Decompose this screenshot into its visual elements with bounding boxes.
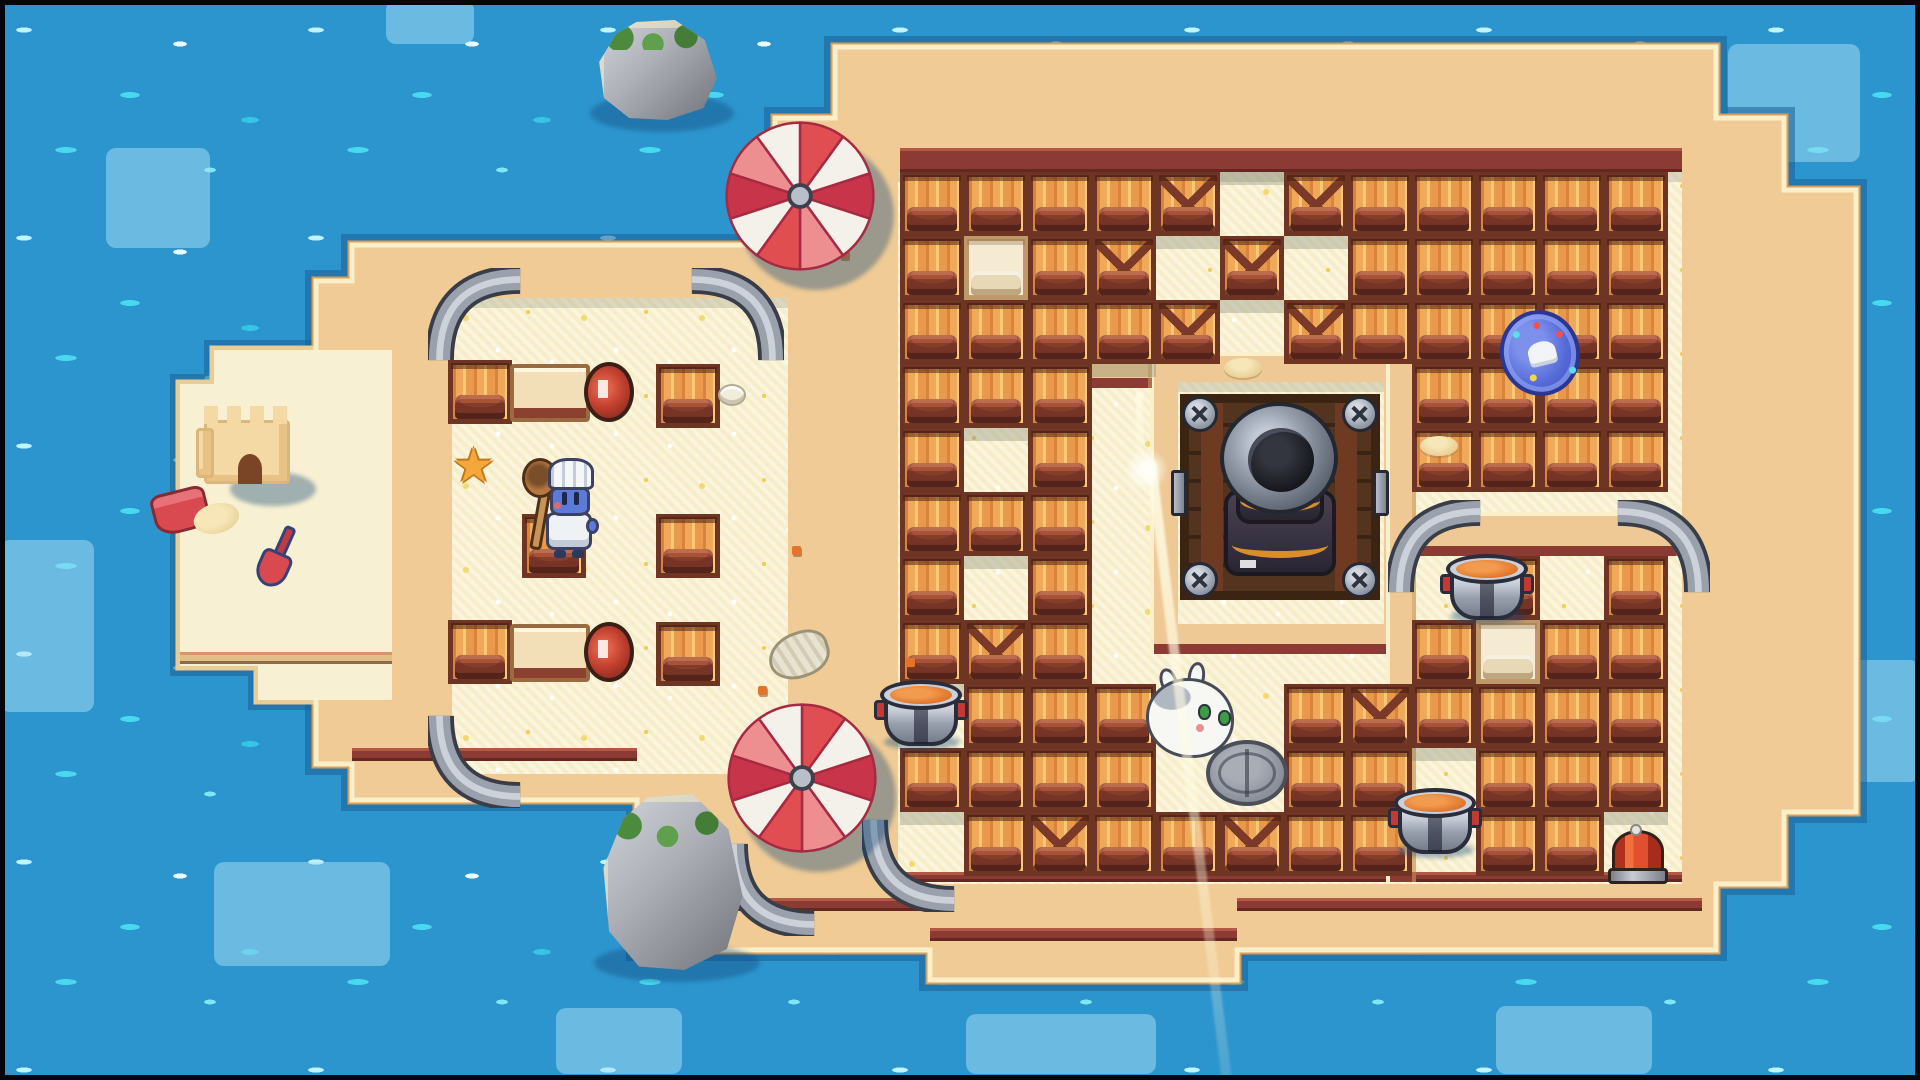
muzzle-glint — [598, 640, 608, 658]
chef-player-character[interactable] — [528, 458, 602, 560]
floor-shadow — [1092, 364, 1156, 377]
muzzle-glint — [598, 380, 608, 398]
crate[interactable] — [900, 748, 964, 812]
soup-pot[interactable] — [878, 676, 964, 750]
crate[interactable] — [448, 620, 512, 684]
floor-shadow — [964, 428, 1028, 441]
crate[interactable] — [1028, 236, 1092, 300]
crate[interactable] — [1540, 172, 1604, 236]
platform-tab-right — [1373, 470, 1389, 516]
seashell — [718, 384, 746, 406]
crate-x-braced[interactable] — [1220, 812, 1284, 876]
cannon-gold-band — [1232, 532, 1328, 558]
cannon[interactable] — [1180, 394, 1380, 600]
chef-cheek — [554, 502, 561, 509]
crate[interactable] — [1604, 300, 1668, 364]
crate-x-braced[interactable] — [1092, 236, 1156, 300]
crate-x-braced[interactable] — [1348, 684, 1412, 748]
bumper-dome — [1612, 830, 1664, 872]
pot-shading — [1480, 580, 1494, 618]
chef-eye-left — [562, 492, 567, 505]
beach-umbrella — [724, 700, 880, 856]
food-crumb — [758, 686, 767, 695]
badge-sprinkle — [1555, 330, 1563, 338]
crate[interactable] — [964, 364, 1028, 428]
cannon-muzzle — [1220, 402, 1338, 514]
bunny-eye — [1220, 712, 1229, 724]
soup-pot[interactable] — [1392, 784, 1478, 858]
launcher-muzzle — [584, 362, 634, 422]
soup — [890, 686, 952, 704]
launcher-body — [510, 624, 590, 682]
crate[interactable] — [1604, 620, 1668, 684]
crate[interactable] — [1540, 620, 1604, 684]
castle-door — [238, 454, 262, 484]
chef-apron — [546, 512, 592, 550]
launcher[interactable] — [510, 620, 636, 686]
sand-pile — [1224, 358, 1262, 378]
corner-rail — [428, 712, 524, 808]
crate[interactable] — [964, 684, 1028, 748]
crate[interactable] — [1604, 428, 1668, 492]
crate[interactable] — [900, 428, 964, 492]
crate[interactable] — [964, 172, 1028, 236]
crate[interactable] — [1476, 236, 1540, 300]
floor-shadow — [1284, 236, 1348, 249]
soup — [1404, 794, 1466, 812]
crate[interactable] — [1540, 428, 1604, 492]
platform-bolt — [1182, 562, 1218, 598]
cannon-glint — [1240, 560, 1256, 568]
maroon-trim — [1237, 898, 1702, 911]
maroon-trim — [180, 652, 392, 664]
crate[interactable] — [1092, 300, 1156, 364]
starfish: ★ — [452, 442, 504, 494]
pot-shading — [1428, 814, 1442, 852]
crate[interactable] — [964, 492, 1028, 556]
crate-pale[interactable] — [1476, 620, 1540, 684]
crate[interactable] — [1092, 812, 1156, 876]
crate[interactable] — [964, 812, 1028, 876]
crate[interactable] — [1412, 236, 1476, 300]
beam-glint — [1124, 448, 1168, 492]
maroon-trim — [930, 928, 1237, 941]
food-crumb — [792, 546, 801, 555]
floor-shadow — [1156, 236, 1220, 249]
platform-bolt — [1342, 396, 1378, 432]
crate[interactable] — [1028, 684, 1092, 748]
beach-umbrella — [722, 118, 878, 274]
bunny-eye — [1200, 706, 1209, 718]
chef-eye-right — [574, 492, 579, 505]
crate[interactable] — [1412, 172, 1476, 236]
floor-shadow — [964, 556, 1028, 569]
crate[interactable] — [1540, 684, 1604, 748]
crate[interactable] — [1604, 364, 1668, 428]
light-beam — [1136, 392, 1143, 464]
floor-shadow — [1220, 172, 1284, 185]
crate[interactable] — [1284, 748, 1348, 812]
crate[interactable] — [1476, 684, 1540, 748]
crate[interactable] — [1540, 812, 1604, 876]
bumper-base — [1608, 868, 1668, 884]
corner-rail — [688, 268, 784, 364]
crate-x-braced[interactable] — [1156, 300, 1220, 364]
crate-x-braced[interactable] — [1156, 172, 1220, 236]
crate[interactable] — [1284, 684, 1348, 748]
floor-shadow — [900, 812, 964, 825]
crate[interactable] — [1028, 556, 1092, 620]
crate[interactable] — [1028, 492, 1092, 556]
maroon-trim — [900, 148, 1682, 172]
crate[interactable] — [656, 364, 720, 428]
floor-shadow — [1412, 748, 1476, 761]
crate[interactable] — [900, 556, 964, 620]
chef-face — [550, 486, 590, 516]
crate[interactable] — [1604, 556, 1668, 620]
crate[interactable] — [1028, 172, 1092, 236]
soup — [1456, 560, 1518, 578]
crate[interactable] — [1604, 748, 1668, 812]
crate[interactable] — [1476, 748, 1540, 812]
game-viewport: ★ — [0, 0, 1920, 1080]
crate[interactable] — [1028, 620, 1092, 684]
crate[interactable] — [964, 748, 1028, 812]
crate[interactable] — [900, 300, 964, 364]
crate[interactable] — [1604, 236, 1668, 300]
launcher[interactable] — [510, 360, 636, 426]
crate[interactable] — [1156, 812, 1220, 876]
crate[interactable] — [1476, 172, 1540, 236]
crate-x-braced[interactable] — [964, 620, 1028, 684]
cannon-bore — [1248, 428, 1314, 492]
crate[interactable] — [1092, 172, 1156, 236]
badge-sprinkle — [1529, 374, 1537, 382]
badge-sprinkle — [1512, 330, 1520, 338]
red-bumper[interactable] — [1608, 830, 1668, 886]
chef-arm — [586, 518, 599, 534]
castle-crenellation — [204, 406, 290, 424]
crate[interactable] — [1412, 300, 1476, 364]
soup-pot[interactable] — [1444, 550, 1530, 624]
crate[interactable] — [1028, 748, 1092, 812]
platform-bolt — [1182, 396, 1218, 432]
badge-sprinkle — [1568, 366, 1576, 374]
crate[interactable] — [1604, 172, 1668, 236]
crate[interactable] — [1540, 236, 1604, 300]
crate-x-braced[interactable] — [1220, 236, 1284, 300]
crate[interactable] — [1604, 684, 1668, 748]
crate[interactable] — [1412, 364, 1476, 428]
crate[interactable] — [1476, 428, 1540, 492]
crate[interactable] — [1028, 364, 1092, 428]
crate[interactable] — [900, 620, 964, 684]
crate[interactable] — [1028, 300, 1092, 364]
crate[interactable] — [1348, 172, 1412, 236]
crate[interactable] — [900, 172, 964, 236]
crate[interactable] — [900, 236, 964, 300]
crate[interactable] — [1412, 620, 1476, 684]
crate-pale[interactable] — [964, 236, 1028, 300]
castle-tower — [196, 428, 214, 478]
badge-sprinkle — [1533, 321, 1541, 329]
corner-rail — [428, 268, 524, 364]
crate[interactable] — [1348, 300, 1412, 364]
bunny-cheek — [1196, 724, 1204, 732]
food-crumb — [906, 658, 915, 667]
crate[interactable] — [900, 364, 964, 428]
chef-foot — [554, 550, 566, 558]
crate[interactable] — [1028, 428, 1092, 492]
crate[interactable] — [448, 360, 512, 424]
crate-x-braced[interactable] — [1284, 172, 1348, 236]
crate[interactable] — [656, 514, 720, 578]
pot-shading — [914, 706, 928, 744]
crate[interactable] — [1476, 812, 1540, 876]
crate-x-braced[interactable] — [1028, 812, 1092, 876]
sand-pile — [1420, 436, 1458, 456]
bumper-cap — [1630, 824, 1642, 836]
badge-hat-icon — [1526, 338, 1558, 364]
chef-foot — [572, 550, 584, 558]
crate[interactable] — [656, 622, 720, 686]
crate[interactable] — [900, 492, 964, 556]
platform-bolt — [1342, 562, 1378, 598]
floor-shadow — [1220, 300, 1284, 313]
platform-tab-left — [1171, 470, 1187, 516]
crate[interactable] — [964, 300, 1028, 364]
launcher-body — [510, 364, 590, 422]
launcher-muzzle — [584, 622, 634, 682]
crate[interactable] — [1348, 236, 1412, 300]
chef-hat — [548, 458, 594, 490]
crate-x-braced[interactable] — [1284, 300, 1348, 364]
crate[interactable] — [1284, 812, 1348, 876]
crate[interactable] — [1540, 748, 1604, 812]
crate[interactable] — [1412, 684, 1476, 748]
